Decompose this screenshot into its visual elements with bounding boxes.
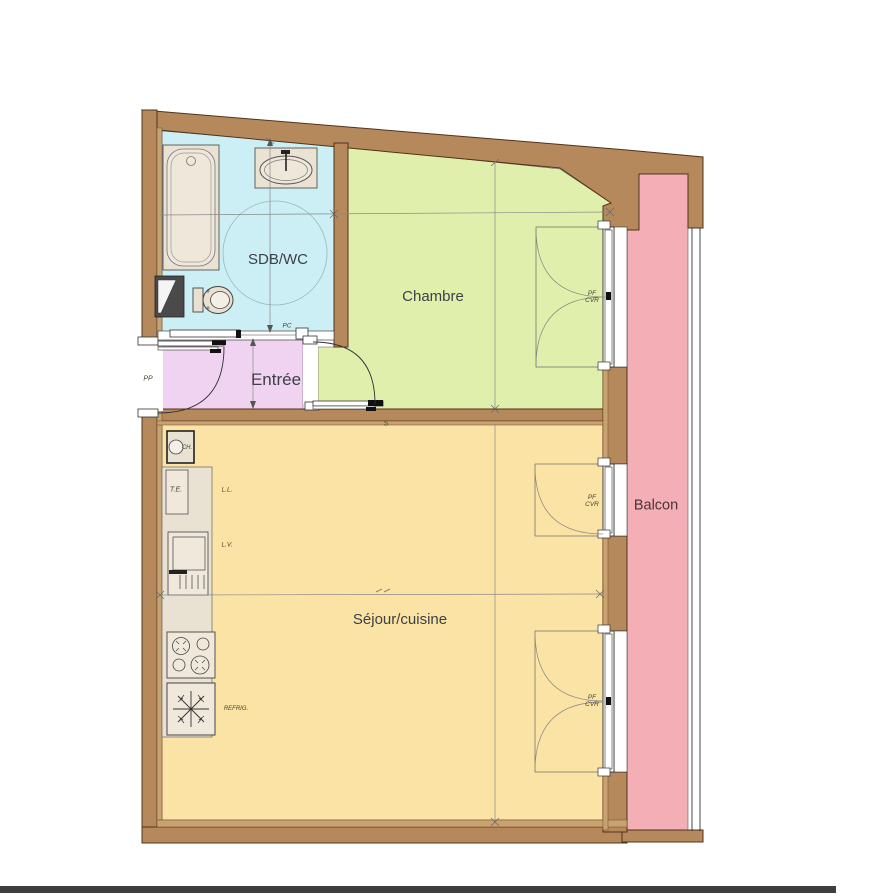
balcony-railing [692,228,700,831]
floor-plan: SDB/WC Chambre Entrée Séjour/cuisine Bal… [0,0,891,896]
window-label-sejour-2-cvr: CVR [585,702,599,709]
room-chambre-area [318,147,611,409]
electrical-panel-label: T.E. [170,486,182,493]
window-label-sejour-2: PF CVR [585,695,599,709]
sdb-right-wall [334,143,348,347]
sejour-top-wall [157,409,603,421]
sliding-door-label: PC [282,324,291,331]
washing-machine-label: L.L. [222,488,233,495]
window-label-sejour-1: PF CVR [585,495,599,509]
duct-shaft [155,276,184,317]
room-label-chambre: Chambre [402,289,464,305]
stove [167,632,215,678]
bathtub [163,145,219,270]
balcony-bottom-wall [622,830,703,842]
left-wall [142,110,157,843]
fridge [167,683,215,735]
front-door-label: PP [143,375,152,382]
window-label-sejour-1-cvr: CVR [585,502,599,509]
window-label-chambre: PF CVR [585,291,599,305]
window-label-chambre-cvr: CVR [585,298,599,305]
right-wall-liner3 [603,774,608,830]
room-label-sejour: Séjour/cuisine [353,612,447,628]
water-heater-label: CH. [182,445,192,451]
toilet [193,287,233,314]
sink [255,148,317,188]
bottom-wall [142,827,627,843]
dishwasher [168,532,208,595]
bottom-wall-liner [157,820,627,827]
right-wall-liner1 [603,369,608,462]
dishwasher-label: L.V. [221,543,232,550]
bottom-divider-bar [0,886,836,893]
s-wall-label: S [384,420,389,427]
room-label-balcon: Balcon [634,498,678,513]
left-wall-liner [157,128,162,820]
fridge-label: REFRIG. [224,706,248,712]
room-label-entree: Entrée [251,371,301,389]
room-label-sdbwc: SDB/WC [248,252,308,268]
right-wall-liner2 [603,538,608,629]
sejour-top-wall-liner [157,421,603,425]
floor-plan-drawing [0,0,891,896]
